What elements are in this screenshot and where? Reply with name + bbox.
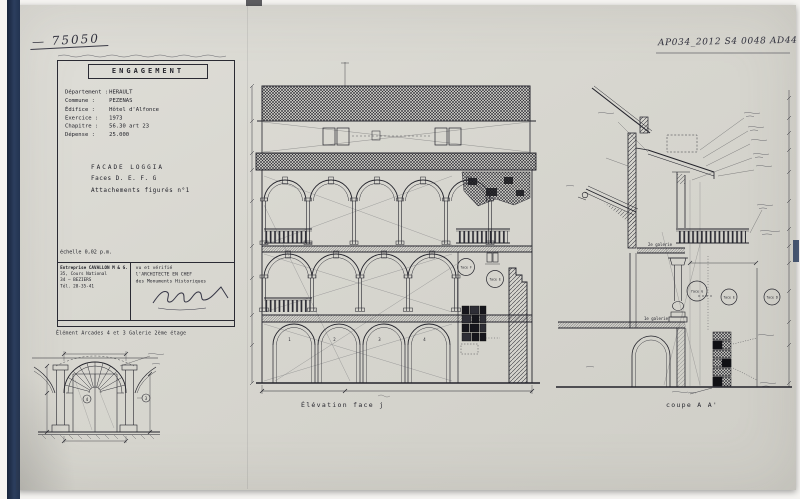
roof-band xyxy=(262,86,530,121)
left-dimension-chain xyxy=(250,84,254,385)
arch-number-3: 3 xyxy=(378,337,381,342)
badge-3-label: 3 xyxy=(145,396,148,401)
masonry-damage-patch xyxy=(462,172,530,206)
face-g-label: face G xyxy=(691,290,703,294)
middle-gallery-arcade xyxy=(260,251,461,312)
section-wall xyxy=(628,133,636,248)
detail-door xyxy=(73,374,117,432)
arch-number-4: 4 xyxy=(423,337,426,342)
gallery-2-label: 2e galerie xyxy=(648,242,673,247)
elevation-drawing xyxy=(250,62,540,397)
sight-lines xyxy=(264,176,460,381)
upper-balustrades xyxy=(264,229,510,243)
corner-wall-section xyxy=(509,268,527,383)
architect-signature xyxy=(153,287,228,310)
handwritten-scribbles xyxy=(58,53,790,57)
scanned-drawing-page: — 75050 AP034_2012 S4 0048 AD44 ENGAGEME… xyxy=(0,0,800,499)
face-d-label: face D xyxy=(766,296,778,300)
bottom-dimension xyxy=(260,385,534,397)
gallery-1-label: 1e galerie xyxy=(644,316,669,321)
face-e-section-label: face E xyxy=(723,296,735,300)
badge-4-label: 4 xyxy=(86,397,89,402)
face-e-label: face E xyxy=(489,278,501,282)
stone-attachment-block xyxy=(461,306,500,354)
section-balustrade xyxy=(676,229,749,243)
section-column xyxy=(668,258,688,322)
arch-number-2: 2 xyxy=(333,337,336,342)
cornice-band xyxy=(256,153,536,170)
right-dimension-chain xyxy=(787,90,791,387)
section-labels: 2e galerie 1e galerie face G face E face… xyxy=(644,242,780,321)
wall-detail-icon xyxy=(485,253,500,264)
detail-badges: 4 3 xyxy=(83,394,150,403)
detail-note-scribbles xyxy=(148,353,164,364)
arch-number-1: 1 xyxy=(288,337,291,342)
section-drawing xyxy=(556,86,792,394)
detail-columns xyxy=(52,365,137,432)
face-f-label: face F xyxy=(460,266,472,270)
drawing-linework: face F face E 1 2 3 4 xyxy=(0,0,800,499)
